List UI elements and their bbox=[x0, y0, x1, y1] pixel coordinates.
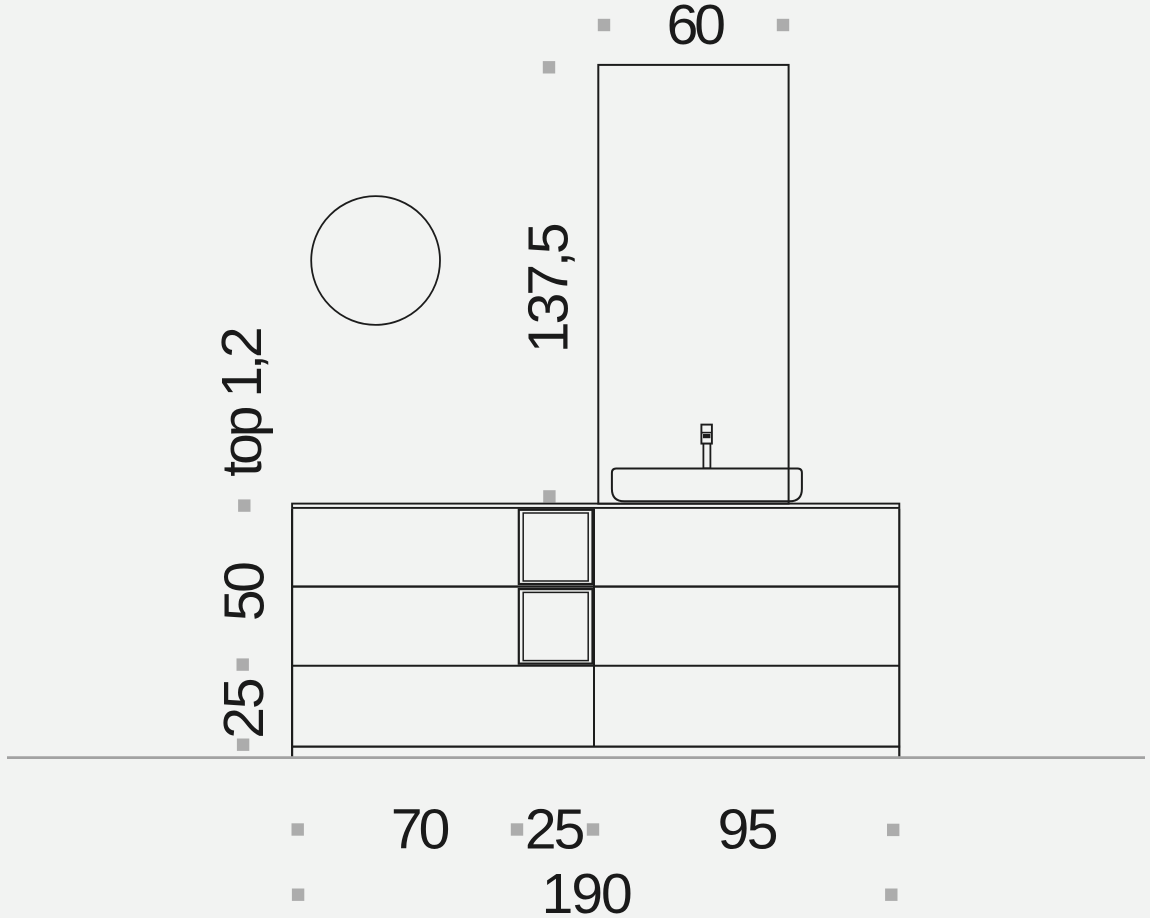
svg-text:70: 70 bbox=[391, 798, 449, 862]
svg-text:50: 50 bbox=[212, 563, 276, 621]
svg-text:190: 190 bbox=[542, 862, 631, 918]
svg-text:25: 25 bbox=[525, 798, 584, 862]
svg-text:25: 25 bbox=[212, 679, 276, 739]
svg-text:95: 95 bbox=[718, 798, 777, 862]
svg-text:top 1,2: top 1,2 bbox=[210, 329, 274, 477]
svg-text:137,5: 137,5 bbox=[517, 224, 581, 353]
svg-text:60: 60 bbox=[667, 0, 725, 57]
